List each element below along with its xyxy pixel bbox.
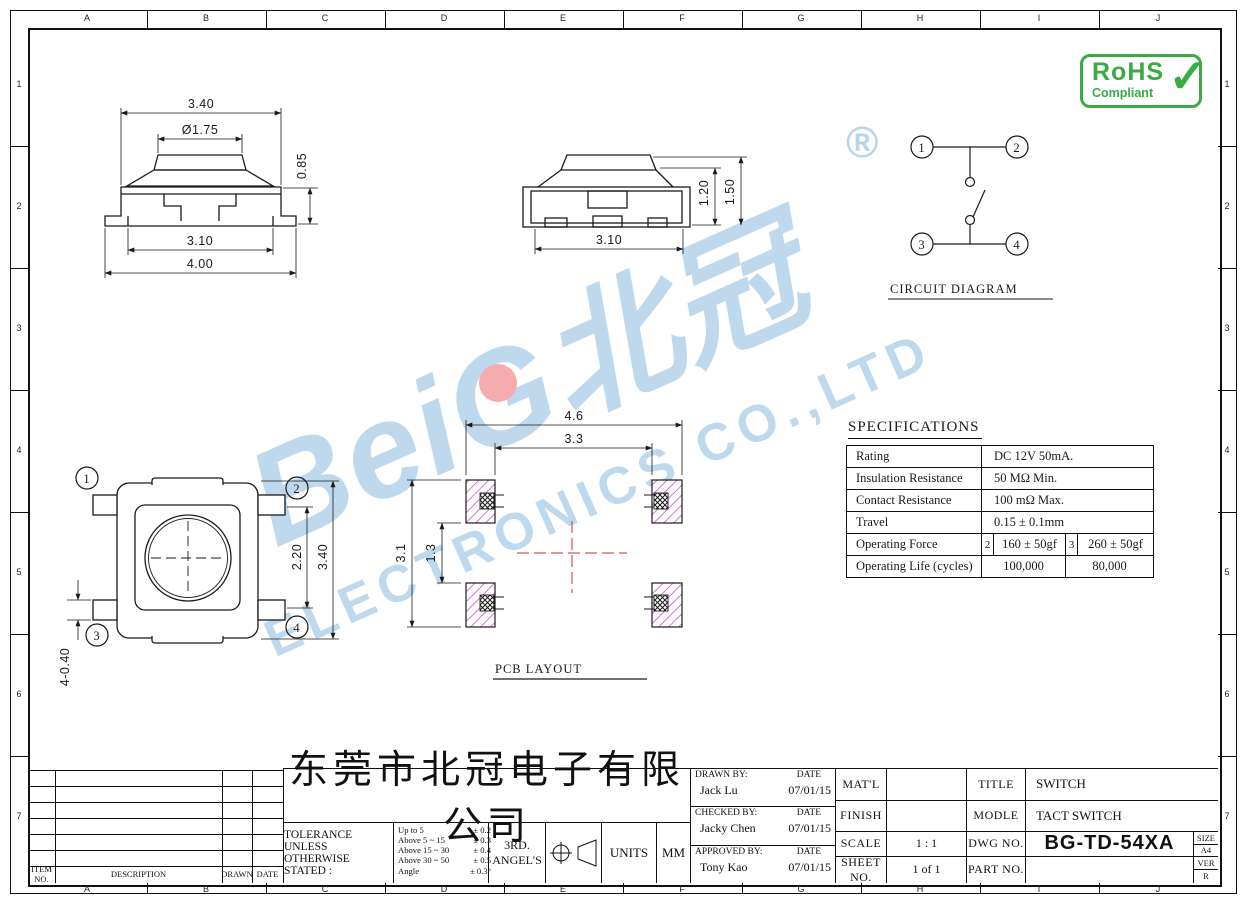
dim-pcb-outer-h: 3.1 [394, 544, 408, 563]
spec-force-value: 160 ± 50gf [994, 534, 1066, 556]
spec-life-value: 80,000 [1066, 556, 1154, 578]
revision-description-header: DESCRIPTION [55, 866, 222, 882]
title-value: SWITCH [1026, 768, 1228, 800]
spec-label: Insulation Resistance [847, 468, 982, 490]
date-label: DATE [797, 808, 821, 818]
finish-label: FINISH [836, 800, 886, 831]
engineering-drawing-page: { "frame": { "letters": ["A","B","C","D"… [0, 0, 1246, 903]
pcb-title: PCB LAYOUT [495, 662, 582, 676]
dim-outer-width: 4.00 [187, 257, 213, 271]
grid-number: 1 [1218, 79, 1236, 91]
spec-force-value: 260 ± 50gf [1078, 534, 1154, 556]
side-view-outline [523, 155, 690, 227]
grid-letter: E [553, 13, 573, 23]
circuit-pin-1: 1 [918, 141, 925, 155]
grid-letter: C [315, 13, 335, 23]
spec-value: DC 12V 50mA. [982, 446, 1154, 468]
spec-value: 100 mΩ Max. [982, 490, 1154, 512]
rohs-badge: RoHS Compliant ✓ [1080, 54, 1202, 108]
dim-pcb-inner-h: 1.3 [424, 544, 438, 563]
grid-letter: H [910, 884, 930, 894]
size-label: SIZE [1194, 831, 1218, 844]
dim-button-diameter: Ø1.75 [182, 123, 219, 137]
tolerance-range: Above 5 ~ 15 [398, 835, 445, 845]
approved-by-label: APPROVED BY: [695, 847, 763, 857]
rohs-title: RoHS [1092, 58, 1164, 87]
units-label: UNITS [602, 822, 656, 883]
finish-value [887, 800, 966, 831]
matl-value [887, 768, 966, 800]
tolerance-note: TOLERANCE UNLESS OTHERWISE STATED : [284, 822, 393, 883]
grid-letter: A [77, 13, 97, 23]
checked-date: 07/01/15 [788, 821, 831, 836]
part-label: PART NO. [967, 856, 1025, 883]
tolerance-range: Angle [398, 866, 419, 876]
grid-number: 3 [10, 323, 28, 335]
checked-by-name: Jacky Chen [700, 821, 756, 836]
table-row: Contact Resistance 100 mΩ Max. [847, 490, 1154, 512]
grid-letter: J [1148, 13, 1168, 23]
dim-inner-width: 3.10 [187, 234, 213, 248]
top-pin-1: 1 [83, 472, 90, 486]
sheet-value: 1 of 1 [887, 856, 966, 883]
grid-number: 4 [1218, 445, 1236, 457]
grid-letter: H [910, 13, 930, 23]
approved-by-name: Tony Kao [700, 860, 747, 875]
specifications-table: Rating DC 12V 50mA. Insulation Resistanc… [846, 445, 1154, 578]
pcb-center-crosshair [517, 521, 627, 593]
side-view: 3.10 1.20 1.50 [505, 130, 755, 265]
spec-life-value: 100,000 [982, 556, 1066, 578]
grid-letter: G [791, 884, 811, 894]
modle-label: MODLE [967, 800, 1025, 831]
grid-number: 6 [1218, 689, 1236, 701]
registered-trademark-icon: ® [846, 118, 878, 168]
grid-number: 2 [1218, 201, 1236, 213]
tolerance-row: Above 30 ~ 50± 0.5 [398, 855, 491, 865]
scale-value: 1 : 1 [887, 831, 966, 856]
grid-letter: D [434, 13, 454, 23]
grid-letter: F [672, 884, 692, 894]
dim-side-h2: 1.50 [723, 179, 737, 205]
title-label: TITLE [967, 768, 1025, 800]
checkmark-icon: ✓ [1168, 53, 1207, 99]
matl-label: MAT'L [836, 768, 886, 800]
projection-angle-label: 3RD. ANGEL'S [489, 822, 545, 883]
grid-number: 7 [10, 811, 28, 823]
grid-letter: J [1148, 884, 1168, 894]
specifications-title: SPECIFICATIONS [848, 419, 982, 439]
company-name: 东莞市北冠电子有限公司 [284, 769, 690, 821]
approved-by-block: APPROVED BY:DATE Tony Kao07/01/15 [690, 845, 835, 883]
table-row: Rating DC 12V 50mA. [847, 446, 1154, 468]
tolerance-row: Up to 5± 0.2 [398, 825, 491, 835]
grid-number: 2 [10, 201, 28, 213]
spec-value: 50 MΩ Min. [982, 468, 1154, 490]
grid-letter: E [553, 884, 573, 894]
tolerance-row: Angle± 0.3° [398, 866, 491, 876]
angle-line2: ANGEL'S [492, 853, 542, 868]
scale-label: SCALE [836, 831, 886, 856]
revision-drawn-header: DRAWN [222, 866, 252, 882]
spec-label: Rating [847, 446, 982, 468]
grid-letter: F [672, 13, 692, 23]
ver-label: VER [1194, 856, 1218, 869]
tolerance-note-line2: OTHERWISE STATED : [284, 853, 393, 877]
drawn-by-name: Jack Lu [700, 783, 738, 798]
circuit-diagram: 1 2 3 4 CIRCUIT DIAGRAM [875, 120, 1085, 310]
pcb-terminal-marks [480, 493, 668, 611]
dim-top-width: 3.40 [188, 97, 214, 111]
spec-force-key: 3 [1066, 534, 1078, 556]
grid-letter: B [196, 884, 216, 894]
ver-value: R [1194, 869, 1218, 883]
grid-letter: C [315, 884, 335, 894]
date-label: DATE [797, 847, 821, 857]
grid-number: 1 [10, 79, 28, 91]
dim-pcb-outer-w: 4.6 [565, 409, 584, 423]
top-pin-2: 2 [293, 482, 300, 496]
grid-number: 5 [10, 567, 28, 579]
grid-number: 6 [10, 689, 28, 701]
date-label: DATE [797, 770, 821, 780]
size-value: A4 [1194, 844, 1218, 856]
specifications-section: SPECIFICATIONS Rating DC 12V 50mA. Insul… [846, 418, 1154, 578]
grid-letter: B [196, 13, 216, 23]
checked-by-block: CHECKED BY:DATE Jacky Chen07/01/15 [690, 806, 835, 845]
tolerance-row: Above 15 ~ 30± 0.4 [398, 845, 491, 855]
spec-force-key: 2 [982, 534, 994, 556]
sheet-label: SHEET NO. [836, 856, 886, 883]
units-value: MM [657, 822, 690, 883]
top-view: 1 2 3 4 2.20 3.40 4-0.40 [55, 445, 355, 700]
dim-top-outer: 3.40 [316, 544, 330, 570]
front-view-outline [105, 155, 296, 226]
table-row: Operating Force 2 160 ± 50gf 3 260 ± 50g… [847, 534, 1154, 556]
dim-side-h1: 1.20 [697, 180, 711, 206]
checked-by-label: CHECKED BY: [695, 808, 757, 818]
front-view: 3.40 Ø1.75 0.85 3.10 4.00 [60, 90, 330, 290]
grid-letter: I [1029, 13, 1049, 23]
tolerance-range: Above 30 ~ 50 [398, 855, 449, 865]
dwg-number: BG-TD-54XA [1026, 831, 1193, 856]
spec-label: Operating Force [847, 534, 982, 556]
rohs-subtitle: Compliant [1092, 86, 1153, 100]
tolerance-range: Above 15 ~ 30 [398, 845, 449, 855]
spec-label: Travel [847, 512, 982, 534]
tolerance-value: ± 0.3° [470, 866, 491, 876]
revision-item-header: ITEM NO. [28, 866, 55, 882]
dim-lead: 4-0.40 [58, 648, 72, 686]
circuit-pin-4: 4 [1013, 238, 1020, 252]
angle-line1: 3RD. [504, 838, 530, 853]
dim-pcb-inner-w: 3.3 [565, 432, 584, 446]
drawn-by-block: DRAWN BY:DATE Jack Lu07/01/15 [690, 768, 835, 806]
spec-value: 0.15 ± 0.1mm [982, 512, 1154, 534]
drawn-date: 07/01/15 [788, 783, 831, 798]
table-row: Travel 0.15 ± 0.1mm [847, 512, 1154, 534]
circuit-pin-3: 3 [918, 238, 925, 252]
circuit-lines [911, 136, 1028, 255]
circuit-title: CIRCUIT DIAGRAM [890, 282, 1018, 296]
top-pin-4: 4 [293, 621, 300, 635]
pcb-dimension-lines [407, 420, 682, 627]
grid-number: 4 [10, 445, 28, 457]
grid-letter: A [77, 884, 97, 894]
watermark-dot [479, 364, 517, 402]
grid-number: 3 [1218, 323, 1236, 335]
tolerance-range: Up to 5 [398, 825, 424, 835]
grid-letter: I [1029, 884, 1049, 894]
table-row: Insulation Resistance 50 MΩ Min. [847, 468, 1154, 490]
tolerance-values: Up to 5± 0.2 Above 5 ~ 15± 0.3 Above 15 … [394, 822, 495, 886]
side-view-dimension-lines [535, 157, 747, 254]
third-angle-projection-icon [546, 822, 601, 883]
top-view-outline [93, 478, 285, 643]
dwg-label: DWG NO. [967, 831, 1025, 856]
part-value [1026, 856, 1193, 883]
modle-value: TACT SWITCH [1026, 800, 1228, 831]
grid-letter: G [791, 13, 811, 23]
dim-height: 0.85 [295, 153, 309, 179]
dim-side-width: 3.10 [596, 233, 622, 247]
tolerance-row: Above 5 ~ 15± 0.3 [398, 835, 491, 845]
drawn-by-label: DRAWN BY: [695, 770, 747, 780]
top-pin-3: 3 [93, 629, 100, 643]
spec-label: Operating Life (cycles) [847, 556, 982, 578]
spec-label: Contact Resistance [847, 490, 982, 512]
circuit-pin-2: 2 [1013, 141, 1020, 155]
revision-date-header: DATE [252, 866, 283, 882]
grid-number: 5 [1218, 567, 1236, 579]
approved-date: 07/01/15 [788, 860, 831, 875]
table-row: Operating Life (cycles) 100,000 80,000 [847, 556, 1154, 578]
tolerance-note-line1: TOLERANCE UNLESS [284, 829, 393, 853]
pcb-layout: 4.6 3.3 3.1 1.3 PCB LAYOUT [395, 405, 725, 690]
dim-top-inner: 2.20 [290, 544, 304, 570]
